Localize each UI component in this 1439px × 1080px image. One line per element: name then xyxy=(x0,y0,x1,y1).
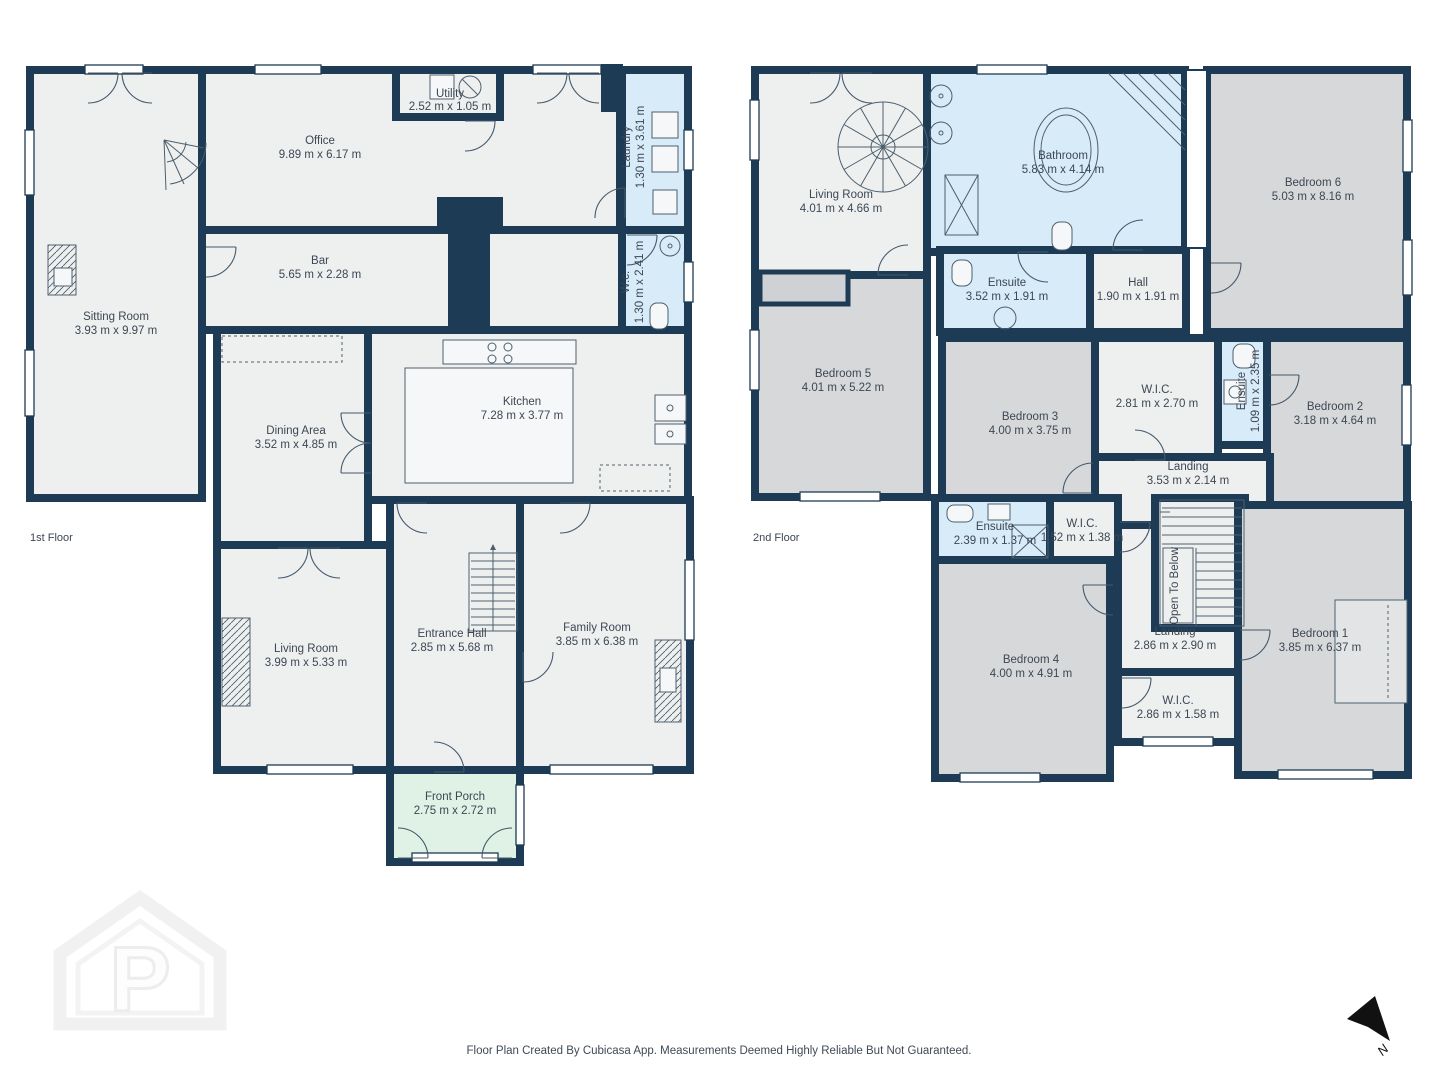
room-label: W.I.C. xyxy=(1141,384,1172,396)
room-living-room-2f xyxy=(755,70,927,275)
room-label: Bar xyxy=(311,255,329,267)
room-label: Kitchen xyxy=(503,396,541,408)
room-dims: 3.18 m x 4.64 m xyxy=(1294,415,1376,427)
room-label: W.c. xyxy=(620,271,632,293)
room-label: Utility xyxy=(436,88,464,100)
north-arrow-icon: N xyxy=(1347,996,1392,1058)
floor-label-2nd: 2nd Floor xyxy=(753,532,800,544)
room-dims: 3.85 m x 6.38 m xyxy=(556,636,638,648)
room-dims: 4.01 m x 5.22 m xyxy=(802,382,884,394)
room-dims: 1.30 m x 3.61 m xyxy=(635,106,647,188)
room-dims: 3.99 m x 5.33 m xyxy=(265,657,347,669)
room-label: Entrance Hall xyxy=(417,628,486,640)
room-label: Bedroom 2 xyxy=(1307,401,1363,413)
room-label: Bedroom 1 xyxy=(1292,628,1348,640)
wall-block xyxy=(601,64,623,112)
room-dims: 9.89 m x 6.17 m xyxy=(279,149,361,161)
room-label: Ensuite xyxy=(988,277,1026,289)
room-label: Bedroom 3 xyxy=(1002,411,1058,423)
wall-chimney-column xyxy=(448,227,490,333)
room-label: Ensuite xyxy=(1236,372,1248,410)
second-floor-plan: Living Room 4.01 m x 4.66 m Bathroom 5.8… xyxy=(750,65,1412,782)
room-family-room xyxy=(520,500,690,770)
room-label: Dining Area xyxy=(266,425,326,437)
room-dims: 2.86 m x 1.58 m xyxy=(1137,709,1219,721)
room-dims: 3.52 m x 1.91 m xyxy=(966,291,1048,303)
room-dims: 2.86 m x 2.90 m xyxy=(1134,640,1216,652)
room-label: Laundry xyxy=(621,126,633,168)
north-label: N xyxy=(1374,1041,1392,1059)
room-dims: 1.52 m x 1.38 m xyxy=(1041,532,1123,544)
floor-label-1st: 1st Floor xyxy=(30,532,73,544)
room-dims: 1.30 m x 2.41 m xyxy=(634,241,646,323)
room-label: Landing xyxy=(1155,626,1196,638)
room-dims: 3.93 m x 9.97 m xyxy=(75,325,157,337)
room-dims: 2.39 m x 1.37 m xyxy=(954,535,1036,547)
room-label: Landing xyxy=(1168,461,1209,473)
room-dims: 7.28 m x 3.77 m xyxy=(481,410,563,422)
room-label: Ensuite xyxy=(976,521,1014,533)
wall-chimney-top xyxy=(437,197,503,229)
watermark-letter: P xyxy=(109,929,170,1031)
room-label: Living Room xyxy=(274,643,338,655)
room-dims: 5.65 m x 2.28 m xyxy=(279,269,361,281)
room-dims: 4.00 m x 4.91 m xyxy=(990,668,1072,680)
room-dims: 1.09 m x 2.35 m xyxy=(1250,350,1262,432)
room-label: Hall xyxy=(1128,277,1148,289)
open-to-below-label: Open To Below xyxy=(1169,546,1181,624)
room-dims: 4.00 m x 3.75 m xyxy=(989,425,1071,437)
spiral-staircase xyxy=(838,102,928,192)
room-dims: 2.81 m x 2.70 m xyxy=(1116,398,1198,410)
room-dims: 2.75 m x 2.72 m xyxy=(414,805,496,817)
room-label: Bedroom 6 xyxy=(1285,177,1341,189)
room-dims: 4.01 m x 4.66 m xyxy=(800,203,882,215)
floorplan-page: Sitting Room 3.93 m x 9.97 m Office 9.89… xyxy=(0,0,1439,1080)
room-label: Bedroom 4 xyxy=(1003,654,1060,666)
room-dims: 1.90 m x 1.91 m xyxy=(1097,291,1179,303)
room-label: Bathroom xyxy=(1038,150,1088,162)
bedroom5-closet xyxy=(760,272,848,304)
lightwell xyxy=(1186,70,1207,248)
cubicasa-watermark: P xyxy=(60,898,220,1031)
room-label: Office xyxy=(305,135,335,147)
room-label: Front Porch xyxy=(425,791,485,803)
room-dims: 2.85 m x 5.68 m xyxy=(411,642,493,654)
room-dims: 3.85 m x 6.37 m xyxy=(1279,642,1361,654)
room-label: Bedroom 5 xyxy=(815,368,871,380)
footer-disclaimer: Floor Plan Created By Cubicasa App. Meas… xyxy=(467,1045,972,1057)
room-label: Sitting Room xyxy=(83,311,149,323)
room-dims: 3.53 m x 2.14 m xyxy=(1147,475,1229,487)
room-label: W.I.C. xyxy=(1066,518,1097,530)
room-dims: 3.52 m x 4.85 m xyxy=(255,439,337,451)
floorplan-canvas: Sitting Room 3.93 m x 9.97 m Office 9.89… xyxy=(0,0,1439,1080)
first-floor-plan: Sitting Room 3.93 m x 9.97 m Office 9.89… xyxy=(25,64,694,862)
room-dims: 5.83 m x 4.14 m xyxy=(1022,164,1104,176)
room-label: W.I.C. xyxy=(1162,695,1193,707)
room-label: Living Room xyxy=(809,189,873,201)
room-label: Family Room xyxy=(563,622,631,634)
room-dims: 5.03 m x 8.16 m xyxy=(1272,191,1354,203)
room-dims: 2.52 m x 1.05 m xyxy=(409,101,491,113)
room-wic-c xyxy=(1118,672,1238,742)
